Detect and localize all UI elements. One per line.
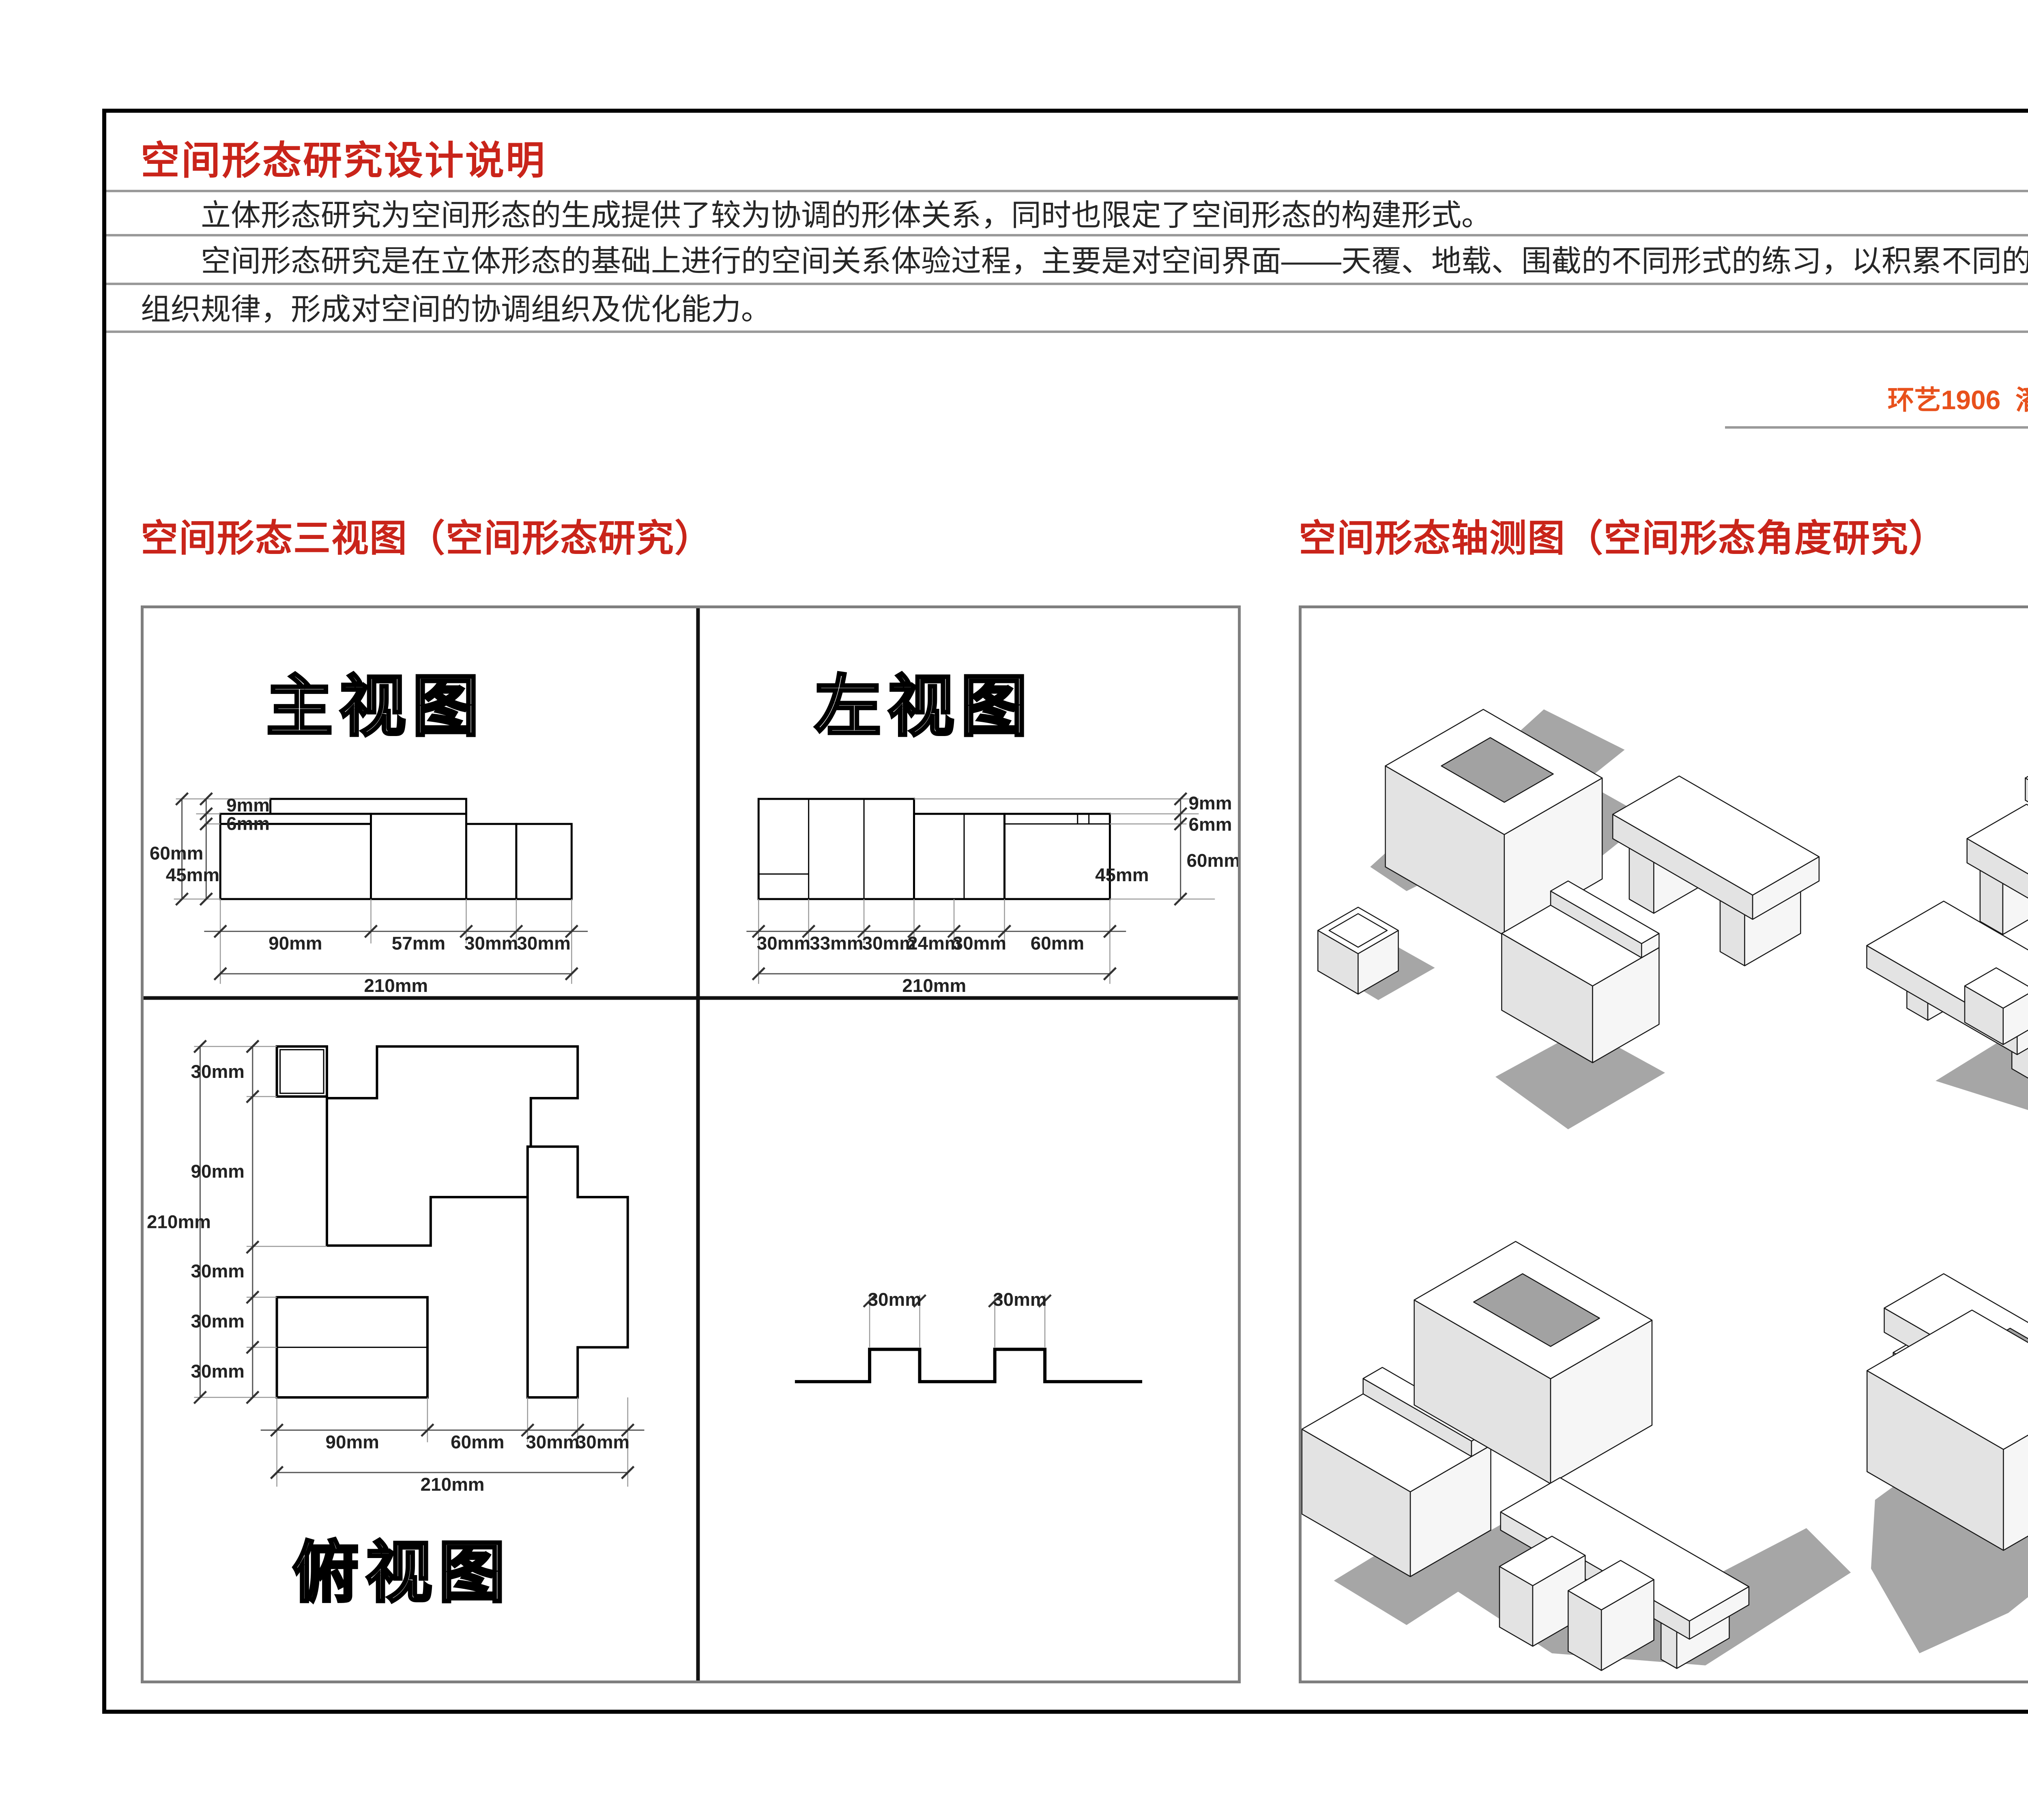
axon-view-2: [1863, 608, 2028, 1144]
axon-view-3: [1302, 1144, 1863, 1680]
dim-label: 30mm: [576, 1432, 629, 1452]
dim-label: 60mm: [451, 1432, 504, 1452]
axonometric-panel: [1299, 605, 2028, 1683]
three-view-drawing: 主视图 9mm 6mm 60mm 45mm 90mm 57mm 30mm 30m…: [144, 608, 1238, 1680]
dim-label: 30mm: [757, 933, 810, 953]
dim-label: 30mm: [464, 933, 518, 953]
design-sheet: 空间形态研究设计说明 立体形态研究为空间形态的生成提供了较为协调的形体关系，同时…: [0, 0, 2028, 1820]
dim-label: 30mm: [191, 1061, 245, 1082]
paragraph-2-line-2: 组织规律，形成对空间的协调组织及优化能力。: [106, 288, 2028, 333]
dim-label: 210mm: [902, 975, 966, 996]
dim-label: 45mm: [1095, 865, 1149, 885]
student-signature: 环艺1906 潘雅轩 201940283: [1725, 378, 2028, 429]
dim-label: 210mm: [421, 1474, 485, 1495]
page-border: 空间形态研究设计说明 立体形态研究为空间形态的生成提供了较为协调的形体关系，同时…: [102, 109, 2028, 1714]
dim-label: 57mm: [392, 933, 445, 953]
dim-label: 90mm: [326, 1432, 379, 1452]
dim-label: 30mm: [191, 1361, 245, 1382]
axon-view-4: [1863, 1144, 2028, 1680]
axon-view-1: [1302, 608, 1863, 1144]
dim-label: 90mm: [269, 933, 322, 953]
dim-label: 9mm: [226, 795, 270, 816]
front-view: 主视图 9mm 6mm 60mm 45mm 90mm 57mm 30mm 30m…: [150, 669, 588, 996]
dim-label: 9mm: [1189, 793, 1232, 813]
heading-three-views: 空间形态三视图（空间形态研究）: [141, 508, 713, 562]
page-title: 空间形态研究设计说明: [141, 129, 546, 185]
dim-label: 30mm: [868, 1289, 922, 1310]
paragraph-1: 立体形态研究为空间形态的生成提供了较为协调的形体关系，同时也限定了空间形态的构建…: [106, 194, 2028, 236]
dim-label: 6mm: [1189, 814, 1232, 835]
dim-label: 210mm: [364, 975, 428, 996]
paragraph-2-line-1: 空间形态研究是在立体形态的基础上进行的空间关系体验过程，主要是对空间界面——天覆…: [106, 239, 2028, 285]
dim-label: 60mm: [1031, 933, 1084, 953]
dim-label: 30mm: [953, 933, 1006, 953]
dim-label: 6mm: [226, 813, 270, 834]
step-profile-detail: 30mm 30mm: [795, 1289, 1142, 1382]
dim-label: 60mm: [1187, 850, 1238, 871]
front-view-label: 主视图: [266, 669, 486, 744]
dim-label: 30mm: [191, 1311, 245, 1332]
title-underline: [106, 190, 2028, 192]
top-view: 30mm 90mm 30mm 30mm 30mm 210mm 90mm 60mm…: [147, 1041, 644, 1610]
left-view: 左视图 9mm 6mm 60mm 45mm 30mm 33mm 30mm 24m…: [746, 669, 1238, 996]
dim-label: 45mm: [166, 865, 219, 885]
top-view-label: 俯视图: [292, 1535, 512, 1610]
dim-label: 60mm: [150, 843, 203, 863]
heading-axonometric: 空间形态轴测图（空间形态角度研究）: [1299, 508, 1947, 562]
dim-label: 33mm: [810, 933, 863, 953]
dim-label: 30mm: [526, 1432, 579, 1452]
dim-label: 30mm: [191, 1261, 245, 1281]
dim-label: 210mm: [147, 1212, 211, 1232]
left-view-label: 左视图: [814, 669, 1034, 744]
dim-label: 90mm: [191, 1161, 245, 1182]
dim-label: 30mm: [993, 1289, 1046, 1310]
three-view-panel: 主视图 9mm 6mm 60mm 45mm 90mm 57mm 30mm 30m…: [141, 605, 1241, 1683]
dim-label: 30mm: [517, 933, 570, 953]
